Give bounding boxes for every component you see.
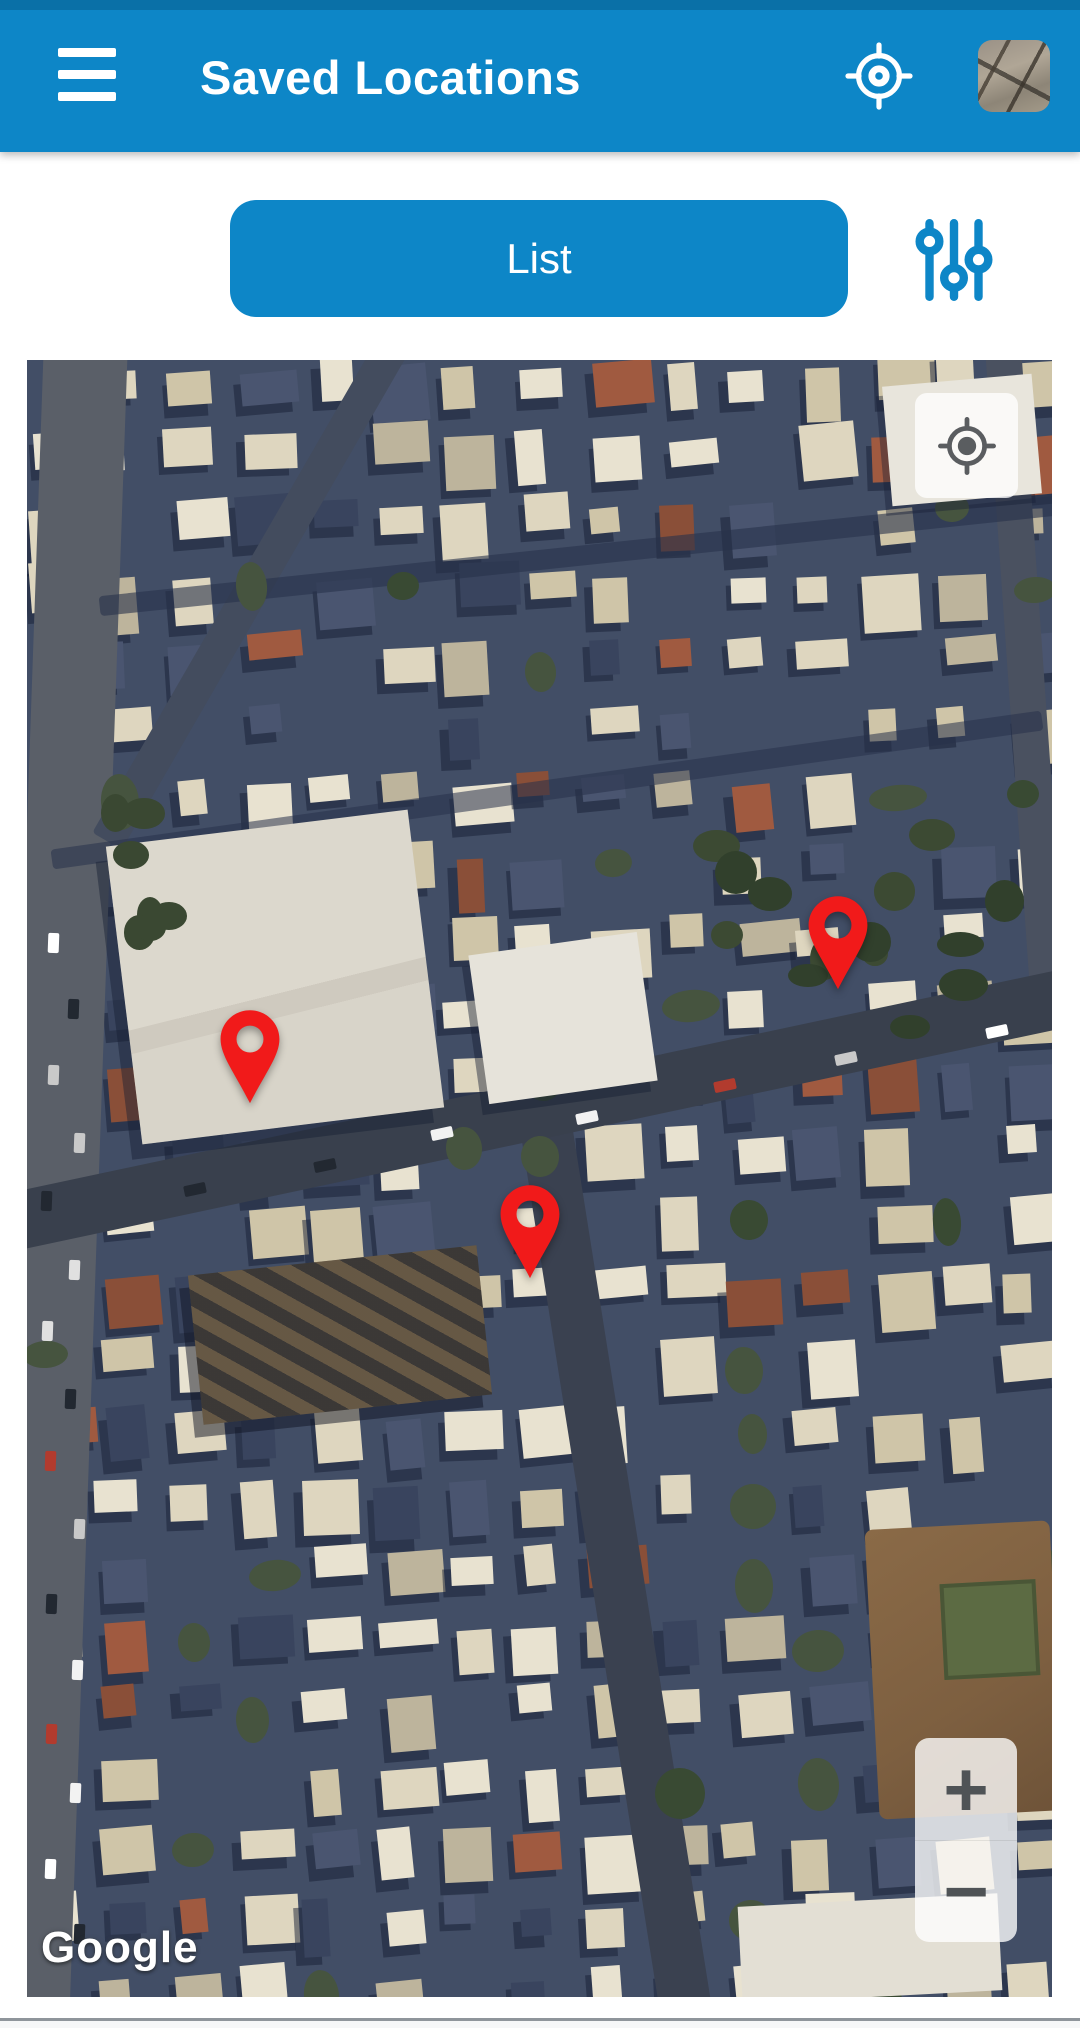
map-building (387, 1549, 445, 1596)
map-building (101, 1759, 159, 1802)
map-car (72, 1660, 84, 1680)
map-building (792, 1127, 842, 1182)
map-building (510, 860, 565, 911)
map-building (310, 1769, 342, 1817)
map-building (520, 1908, 551, 1937)
map-building (104, 1621, 148, 1675)
map-building (383, 647, 435, 684)
map-building (525, 1768, 560, 1823)
map-building (1002, 1273, 1031, 1313)
map-building (101, 1684, 137, 1719)
map-building (443, 435, 495, 492)
map-view[interactable]: Google + − (27, 360, 1052, 1997)
map-car (45, 1451, 57, 1471)
map-building (456, 859, 485, 915)
map-tree (302, 1968, 342, 1997)
map-building (732, 783, 775, 833)
map-building (379, 506, 423, 535)
map-tree (868, 783, 928, 813)
map-building (443, 1894, 475, 1924)
map-tree (123, 798, 165, 828)
map-building (724, 1616, 786, 1663)
map-building (721, 1822, 756, 1859)
map-building (307, 1616, 364, 1653)
map-building (806, 773, 857, 829)
map-car (46, 1724, 58, 1744)
map-building (523, 1544, 556, 1587)
map-building (665, 1125, 699, 1162)
map-tree (135, 914, 166, 941)
map-building (666, 1262, 726, 1297)
map-building (246, 630, 303, 662)
map-building (796, 576, 827, 604)
map-building (861, 574, 921, 635)
map-building (314, 1407, 364, 1465)
map-building (941, 1063, 973, 1112)
map-building (516, 1682, 551, 1713)
map-building (726, 1278, 783, 1327)
map-building (176, 497, 230, 540)
map-building (511, 1627, 558, 1676)
avatar-map-thumbnail[interactable] (978, 40, 1050, 112)
map-building (1010, 1193, 1052, 1245)
map-tree (937, 932, 985, 957)
map-building (585, 1766, 627, 1797)
map-building (240, 1480, 278, 1540)
map-building (457, 1629, 495, 1675)
status-bar (0, 0, 1080, 10)
map-building (659, 638, 692, 668)
map-building (98, 1979, 131, 1997)
map-building (801, 1269, 851, 1305)
map-tree (909, 819, 955, 851)
map-tree (523, 650, 557, 692)
map-building (662, 1620, 699, 1667)
map-building (792, 1407, 839, 1446)
map-marker-saved-location[interactable] (217, 1008, 283, 1107)
map-building (179, 1683, 221, 1711)
map-tree (748, 877, 793, 911)
my-location-button[interactable] (915, 393, 1018, 498)
map-building (809, 1681, 872, 1726)
map-building (588, 507, 619, 534)
map-tree (723, 1346, 763, 1395)
map-building (108, 707, 152, 743)
map-building (807, 1339, 859, 1399)
map-tree (177, 1622, 211, 1663)
map-building (660, 1336, 718, 1397)
map-tree (247, 1557, 302, 1593)
map-building (380, 1766, 439, 1809)
map-building (524, 491, 570, 532)
map-building (239, 1962, 287, 1997)
map-marker-saved-location[interactable] (805, 894, 871, 993)
map-building (727, 370, 764, 403)
map-building (730, 578, 766, 604)
map-building (1018, 1840, 1052, 1871)
map-tree (101, 794, 130, 832)
map-building (593, 1266, 649, 1299)
map-building (943, 1263, 993, 1305)
map-building (443, 1827, 494, 1883)
map-tree (985, 880, 1024, 921)
map-building (660, 1474, 691, 1514)
map-building (727, 990, 763, 1029)
google-logo: Google (41, 1923, 199, 1973)
app-bar: Saved Locations (0, 0, 1080, 152)
map-tree (728, 1482, 777, 1530)
map-building (99, 1825, 156, 1876)
map-building (738, 1137, 787, 1176)
map-building (726, 637, 763, 668)
map-car (45, 1859, 57, 1879)
map-tree (170, 1831, 215, 1869)
map-car (65, 1389, 77, 1409)
app-screen: Saved Locations List Map (0, 0, 1080, 2028)
map-building (945, 634, 999, 666)
map-car (41, 1321, 53, 1341)
map-tree (386, 571, 420, 602)
map-building (513, 429, 546, 486)
map-building (387, 1695, 436, 1753)
map-building (444, 1759, 491, 1795)
map-building (660, 713, 691, 750)
map-car (70, 1783, 82, 1803)
map-tree (729, 1199, 771, 1243)
map-building (667, 362, 698, 411)
map-building (1006, 1124, 1036, 1154)
map-car (45, 1594, 57, 1614)
map-building (238, 1615, 295, 1660)
map-building (386, 1909, 426, 1946)
map-building (1007, 1962, 1050, 1997)
target-dot-icon (934, 413, 1000, 479)
map-tree (737, 1413, 768, 1454)
zoom-out-button[interactable]: − (915, 1841, 1017, 1943)
map-green-patch (939, 1579, 1040, 1680)
map-tree (795, 1756, 841, 1813)
map-building (240, 369, 300, 406)
map-tree (791, 1628, 845, 1673)
map-tree (235, 1696, 270, 1744)
view-toggle: List Map (230, 200, 848, 317)
map-tree (711, 921, 742, 949)
map-building (105, 1274, 163, 1329)
map-building (441, 641, 489, 697)
page-title: Saved Locations (200, 50, 581, 105)
map-building (105, 1404, 149, 1461)
map-car (73, 1132, 85, 1152)
map-building (385, 1419, 424, 1471)
map-construction-site (188, 1245, 492, 1424)
filter-button[interactable] (912, 216, 996, 304)
map-building (878, 1271, 936, 1333)
map-building (511, 1981, 546, 1997)
map-tree (594, 847, 633, 879)
map-marker-saved-location[interactable] (497, 1183, 563, 1282)
map-white-building (468, 932, 657, 1104)
map-building (166, 370, 213, 406)
map-building (795, 639, 849, 670)
map-building (669, 438, 720, 468)
map-building (529, 571, 577, 599)
map-building (301, 1688, 347, 1723)
map-car (48, 933, 60, 953)
map-building (938, 574, 988, 622)
map-building (520, 368, 563, 399)
map-tree (113, 841, 149, 869)
map-building (378, 1618, 439, 1648)
map-building (793, 1485, 825, 1528)
map-building (791, 1839, 829, 1892)
map-building (513, 1831, 563, 1872)
map-building (809, 1555, 858, 1607)
map-car (68, 998, 80, 1018)
map-car (73, 1519, 85, 1539)
map-building (592, 436, 642, 483)
map-building (441, 366, 475, 410)
map-tree (939, 969, 987, 1002)
tab-list[interactable]: List (230, 200, 848, 317)
map-building (301, 1898, 331, 1957)
map-building (864, 1129, 910, 1187)
map-building (660, 1197, 698, 1252)
map-building (805, 367, 841, 422)
map-building (591, 1965, 622, 1997)
map-building (590, 706, 639, 735)
map-building (585, 1908, 625, 1949)
map-building (449, 1479, 490, 1537)
map-building (162, 427, 213, 468)
map-tree (654, 1767, 706, 1820)
map-building (448, 718, 480, 760)
map-tree (931, 1197, 963, 1247)
map-building (739, 918, 802, 956)
map-building (308, 774, 350, 802)
map-building (240, 1828, 295, 1859)
menu-button[interactable] (58, 48, 118, 104)
crosshair-target-icon (843, 40, 915, 112)
map-building (877, 1205, 933, 1244)
map-building (175, 1973, 225, 1997)
map-car (40, 1191, 52, 1211)
map-building (244, 434, 297, 471)
map-building (809, 843, 844, 874)
map-tree (734, 1558, 775, 1613)
map-building (372, 1486, 419, 1541)
map-car (48, 1065, 60, 1085)
map-tree (874, 872, 916, 911)
sliders-icon (912, 216, 996, 304)
map-building (670, 913, 705, 948)
map-building (249, 703, 282, 734)
map-building (592, 577, 629, 624)
map-building (799, 420, 859, 481)
map-building (376, 1827, 414, 1881)
map-building (170, 1485, 208, 1523)
map-building (948, 1417, 983, 1474)
map-tree (890, 1015, 930, 1040)
map-building (376, 1978, 425, 1997)
map-building (738, 1691, 794, 1738)
map-car (68, 1260, 80, 1280)
map-building (373, 420, 430, 465)
map-building (520, 1489, 564, 1528)
map-building (1009, 1064, 1052, 1122)
map-building (302, 1479, 360, 1536)
map-building (589, 640, 619, 676)
map-building (1001, 1340, 1052, 1382)
map-building (177, 779, 208, 816)
hamburger-icon (58, 48, 116, 57)
map-building (241, 1417, 276, 1459)
map-building (450, 1556, 494, 1586)
map-building (314, 1543, 368, 1577)
map-tree (660, 987, 720, 1025)
zoom-in-button[interactable]: + (915, 1738, 1017, 1841)
map-building (249, 1205, 309, 1258)
map-building (445, 1410, 505, 1451)
map-building (872, 1414, 924, 1464)
zoom-controls: + − (915, 1738, 1017, 1942)
map-building (94, 1479, 139, 1513)
locate-button[interactable] (843, 40, 915, 112)
map-building (101, 1335, 155, 1371)
map-building (102, 1559, 148, 1604)
map-building (439, 503, 488, 562)
map-building (584, 1123, 644, 1182)
map-building (592, 360, 655, 408)
map-building (245, 1894, 301, 1946)
map-building (312, 1829, 361, 1869)
